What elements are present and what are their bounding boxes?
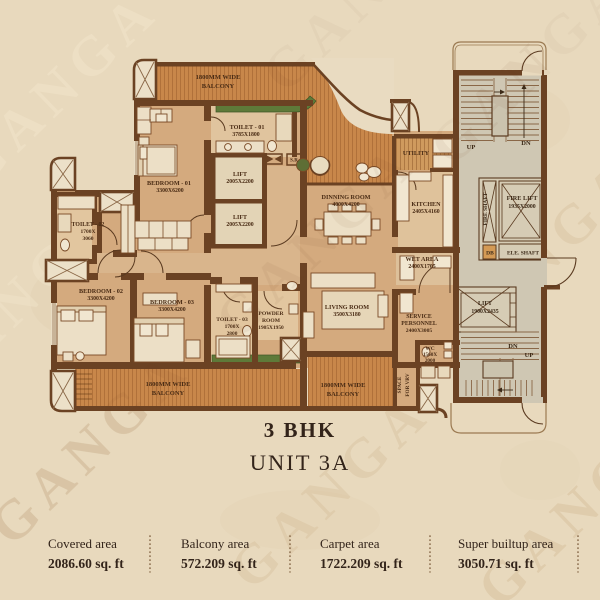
svg-text:FIRE SHAFT: FIRE SHAFT: [483, 192, 489, 225]
svg-text:FOR VRV: FOR VRV: [405, 373, 411, 396]
svg-text:BEDROOM - 01: BEDROOM - 01: [147, 180, 191, 187]
svg-text:1935X2000: 1935X2000: [508, 204, 535, 210]
svg-text:2000: 2000: [425, 358, 436, 364]
svg-text:2005X2200: 2005X2200: [226, 179, 253, 185]
svg-text:BEDROOM - 03: BEDROOM - 03: [150, 299, 194, 306]
svg-text:Balcony area: Balcony area: [181, 536, 249, 551]
svg-text:FIRE LIFT: FIRE LIFT: [507, 195, 539, 202]
svg-text:DN: DN: [508, 343, 518, 350]
svg-text:BALCONY: BALCONY: [327, 391, 360, 398]
svg-text:LIVING ROOM: LIVING ROOM: [325, 304, 369, 311]
svg-text:3060: 3060: [83, 236, 94, 242]
svg-text:BALCONY: BALCONY: [202, 83, 235, 90]
svg-text:UP: UP: [525, 352, 534, 359]
svg-text:WET AREA: WET AREA: [405, 256, 439, 263]
svg-text:PERSONNEL: PERSONNEL: [401, 321, 437, 327]
svg-text:LIFT: LIFT: [478, 301, 492, 307]
svg-text:ELE. SHAFT: ELE. SHAFT: [507, 251, 539, 257]
svg-text:Carpet area: Carpet area: [320, 536, 380, 551]
svg-text:3500X3180: 3500X3180: [333, 312, 360, 318]
svg-text:SERVICE: SERVICE: [406, 314, 432, 320]
svg-text:3050.71 sq. ft: 3050.71 sq. ft: [458, 556, 534, 571]
svg-text:3 BHK: 3 BHK: [264, 418, 336, 442]
svg-text:1800MM WIDE: 1800MM WIDE: [196, 74, 241, 81]
svg-text:SPACE: SPACE: [397, 376, 403, 393]
svg-text:LIFT: LIFT: [233, 215, 247, 221]
svg-text:Super builtup area: Super builtup area: [458, 536, 554, 551]
svg-text:TOILET - 02: TOILET - 02: [72, 222, 105, 228]
svg-text:2400X3005: 2400X3005: [406, 328, 433, 334]
svg-text:3300X6200: 3300X6200: [156, 188, 183, 194]
svg-text:3300X4200: 3300X4200: [158, 307, 185, 313]
svg-text:2400X1705: 2400X1705: [408, 264, 435, 270]
svg-text:2086.60 sq. ft: 2086.60 sq. ft: [48, 556, 124, 571]
svg-text:TOILET - 01: TOILET - 01: [230, 124, 265, 131]
svg-text:UNIT 3A: UNIT 3A: [250, 450, 350, 475]
svg-text:2405X4160: 2405X4160: [412, 209, 439, 215]
svg-text:BEDROOM - 02: BEDROOM - 02: [79, 288, 123, 295]
svg-text:3785X1800: 3785X1800: [232, 132, 259, 138]
svg-text:1900X2435: 1900X2435: [471, 309, 498, 315]
svg-text:1700X: 1700X: [81, 229, 96, 235]
svg-text:2005X2200: 2005X2200: [226, 222, 253, 228]
svg-text:1722.209 sq. ft: 1722.209 sq. ft: [320, 556, 403, 571]
svg-text:LIFT: LIFT: [233, 172, 247, 178]
svg-text:Covered area: Covered area: [48, 536, 117, 551]
svg-text:S.R: S.R: [290, 159, 298, 164]
svg-text:KITCHEN: KITCHEN: [411, 201, 441, 208]
svg-text:DN: DN: [521, 140, 531, 147]
svg-text:1800MM WIDE: 1800MM WIDE: [321, 382, 366, 389]
svg-text:572.209 sq. ft: 572.209 sq. ft: [181, 556, 257, 571]
svg-text:3300X4200: 3300X4200: [87, 296, 114, 302]
svg-text:DB: DB: [486, 251, 494, 257]
